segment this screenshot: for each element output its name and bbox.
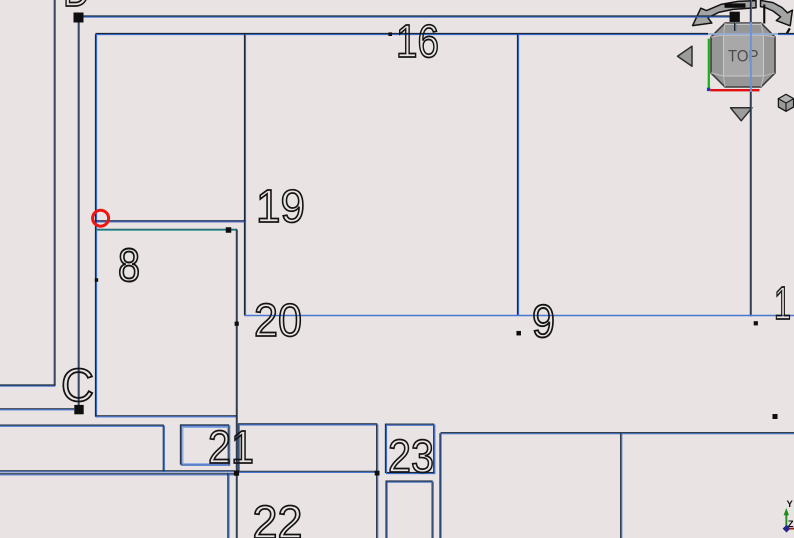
svg-text:TOP: TOP	[728, 47, 759, 66]
svg-text:20: 20	[254, 294, 302, 346]
svg-text:22: 22	[253, 496, 303, 538]
svg-text:C: C	[61, 359, 94, 411]
svg-text:9: 9	[532, 295, 555, 347]
svg-text:16: 16	[396, 15, 439, 67]
svg-text:D: D	[63, 0, 90, 16]
svg-text:19: 19	[256, 180, 305, 232]
svg-text:8: 8	[118, 239, 140, 291]
svg-text:23: 23	[388, 430, 434, 482]
svg-text:1: 1	[774, 277, 791, 329]
svg-text:21: 21	[208, 421, 254, 473]
svg-text:Y: Y	[787, 499, 794, 510]
